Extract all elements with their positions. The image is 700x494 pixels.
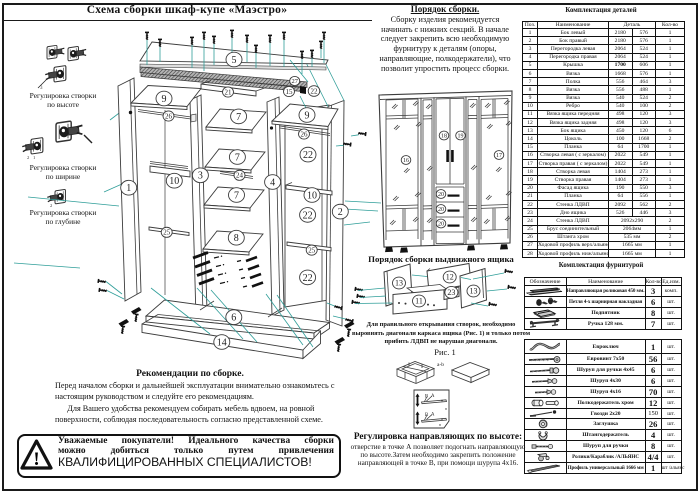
svg-text:2: 2 xyxy=(338,207,343,218)
svg-text:8: 8 xyxy=(234,233,239,244)
svg-text:18: 18 xyxy=(441,134,447,140)
svg-text:22: 22 xyxy=(311,87,319,95)
svg-text:21: 21 xyxy=(225,88,233,96)
svg-text:15: 15 xyxy=(286,88,294,96)
svg-text:3: 3 xyxy=(40,86,43,91)
svg-text:20: 20 xyxy=(438,192,444,198)
svg-text:10: 10 xyxy=(307,190,317,201)
svg-text:6: 6 xyxy=(231,313,236,324)
svg-text:a-b: a-b xyxy=(437,362,444,368)
svg-text:17: 17 xyxy=(496,153,502,159)
svg-text:1: 1 xyxy=(126,183,131,194)
svg-text:16: 16 xyxy=(403,158,409,164)
svg-text:25: 25 xyxy=(163,229,171,237)
svg-text:13: 13 xyxy=(470,287,478,296)
svg-text:11: 11 xyxy=(415,297,423,306)
svg-text:2: 2 xyxy=(50,203,52,208)
svg-text:3: 3 xyxy=(198,171,203,182)
svg-text:26: 26 xyxy=(165,112,173,120)
svg-text:23: 23 xyxy=(447,288,455,297)
svg-text:22: 22 xyxy=(303,273,313,284)
svg-text:12: 12 xyxy=(446,273,454,282)
svg-text:10: 10 xyxy=(169,176,179,187)
svg-text:22: 22 xyxy=(303,210,313,221)
svg-text:5: 5 xyxy=(232,55,237,66)
svg-text:19: 19 xyxy=(458,134,464,140)
svg-text:24: 24 xyxy=(236,172,244,180)
svg-text:1: 1 xyxy=(33,155,35,160)
svg-text:13: 13 xyxy=(395,279,403,288)
svg-text:22: 22 xyxy=(303,150,313,161)
svg-text:7: 7 xyxy=(235,152,240,163)
svg-text:7: 7 xyxy=(236,112,241,123)
svg-text:14: 14 xyxy=(217,337,227,348)
svg-text:27: 27 xyxy=(291,78,298,85)
svg-text:7: 7 xyxy=(234,190,239,201)
svg-text:20: 20 xyxy=(438,207,444,213)
svg-text:9: 9 xyxy=(305,110,310,121)
svg-text:26: 26 xyxy=(301,130,309,138)
svg-text:25: 25 xyxy=(308,246,316,254)
svg-text:4: 4 xyxy=(270,177,275,188)
svg-text:2: 2 xyxy=(27,155,29,160)
svg-text:9: 9 xyxy=(162,94,167,105)
svg-text:20: 20 xyxy=(438,222,444,228)
